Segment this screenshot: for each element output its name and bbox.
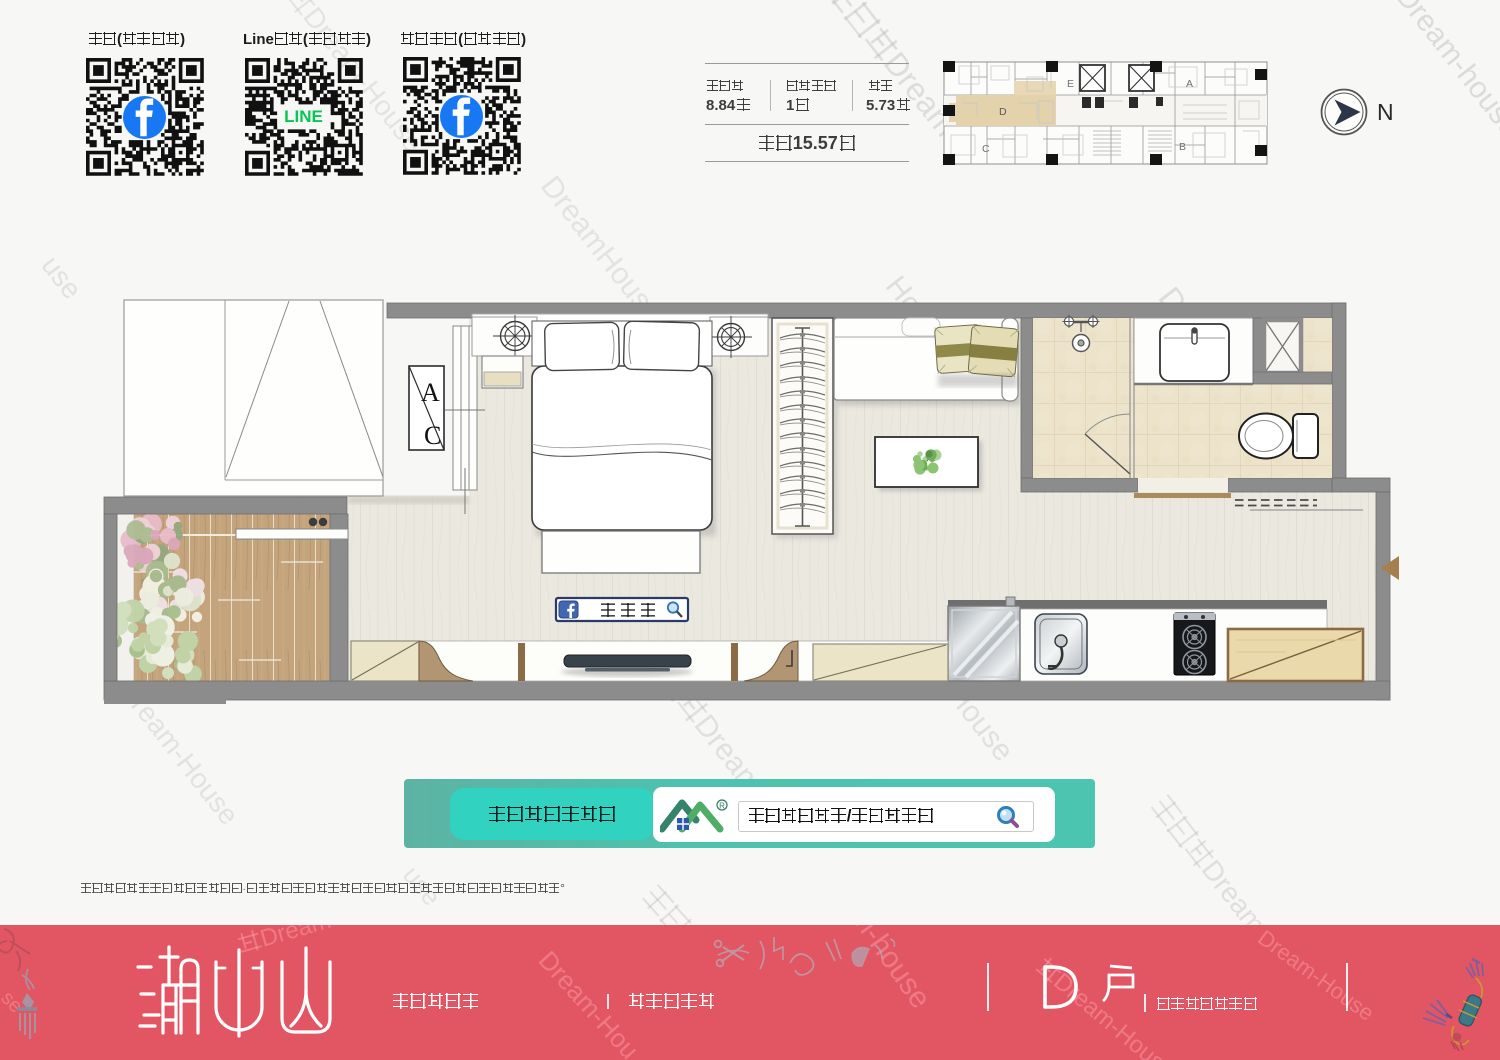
svg-text:A: A bbox=[421, 378, 440, 407]
svg-text:R: R bbox=[719, 802, 725, 811]
svg-text:C: C bbox=[424, 421, 441, 450]
